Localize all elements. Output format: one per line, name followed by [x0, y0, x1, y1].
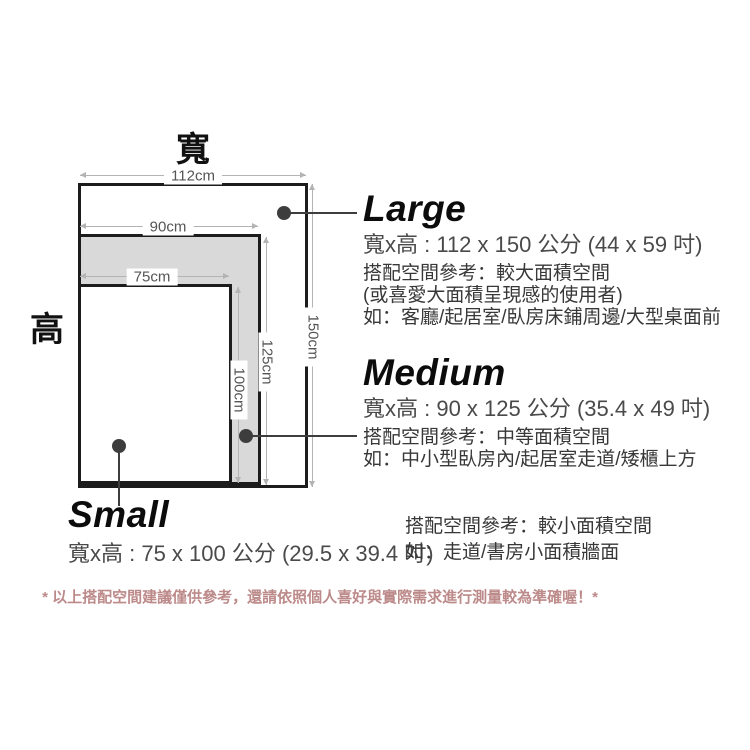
size-dimensions-small: 寬x高 : 75 x 100 公分 (29.5 x 39.4 吋) — [68, 542, 434, 566]
dim-label-medium-width: 90cm — [143, 219, 194, 236]
dim-label-large-height: 150cm — [305, 307, 322, 366]
size-chart-infographic: 寬 高 112cm 90cm 75cm 150cm 125cm 100cm La… — [0, 0, 750, 750]
size-desc-line: 搭配空間參考：較大面積空間 — [363, 263, 721, 285]
dim-label-large-width: 112cm — [164, 168, 222, 185]
size-description-medium: 搭配空間參考：中等面積空間 如：中小型臥房內/起居室走道/矮櫃上方 — [363, 427, 710, 471]
size-desc-line: (或喜愛大面積呈現感的使用者) — [363, 285, 721, 307]
size-desc-line: 搭配空間參考：較小面積空間 — [405, 514, 652, 540]
dim-label-medium-height: 125cm — [259, 332, 276, 391]
width-axis-label: 寬 — [176, 133, 210, 167]
size-desc-line: 如：客廳/起居室/臥房床鋪周邊/大型桌面前 — [363, 307, 721, 329]
pointer-line-large — [283, 212, 357, 214]
size-block-medium: Medium 寬x高 : 90 x 125 公分 (35.4 x 49 吋) 搭… — [363, 354, 710, 471]
size-block-large: Large 寬x高 : 112 x 150 公分 (44 x 59 吋) 搭配空… — [363, 190, 721, 329]
size-heading-small: Small — [68, 496, 434, 533]
size-heading-large: Large — [363, 190, 721, 227]
height-axis-label: 高 — [30, 313, 64, 347]
small-size-rect — [78, 284, 232, 484]
dim-label-small-width: 75cm — [127, 269, 178, 286]
size-heading-medium: Medium — [363, 354, 710, 391]
pointer-dot-small — [112, 439, 126, 453]
pointer-dot-medium — [239, 429, 253, 443]
size-desc-line: 如：中小型臥房內/起居室走道/矮櫃上方 — [363, 449, 710, 471]
pointer-line-medium — [245, 435, 357, 437]
size-desc-line: 搭配空間參考：中等面積空間 — [363, 427, 710, 449]
size-description-large: 搭配空間參考：較大面積空間 (或喜愛大面積呈現感的使用者) 如：客廳/起居室/臥… — [363, 263, 721, 329]
size-dimensions-medium: 寬x高 : 90 x 125 公分 (35.4 x 49 吋) — [363, 397, 710, 421]
dim-label-small-height: 100cm — [231, 360, 248, 419]
size-description-small: 搭配空間參考：較小面積空間 如：走道/書房小面積牆面 — [405, 514, 652, 566]
size-desc-line: 如：走道/書房小面積牆面 — [405, 540, 652, 566]
size-block-small: Small 寬x高 : 75 x 100 公分 (29.5 x 39.4 吋) — [68, 496, 434, 566]
size-dimensions-large: 寬x高 : 112 x 150 公分 (44 x 59 吋) — [363, 233, 721, 257]
pointer-dot-large — [277, 206, 291, 220]
footer-disclaimer-note: * 以上搭配空間建議僅供參考，還請依照個人喜好與實際需求進行測量較為準確喔！* — [0, 588, 640, 608]
